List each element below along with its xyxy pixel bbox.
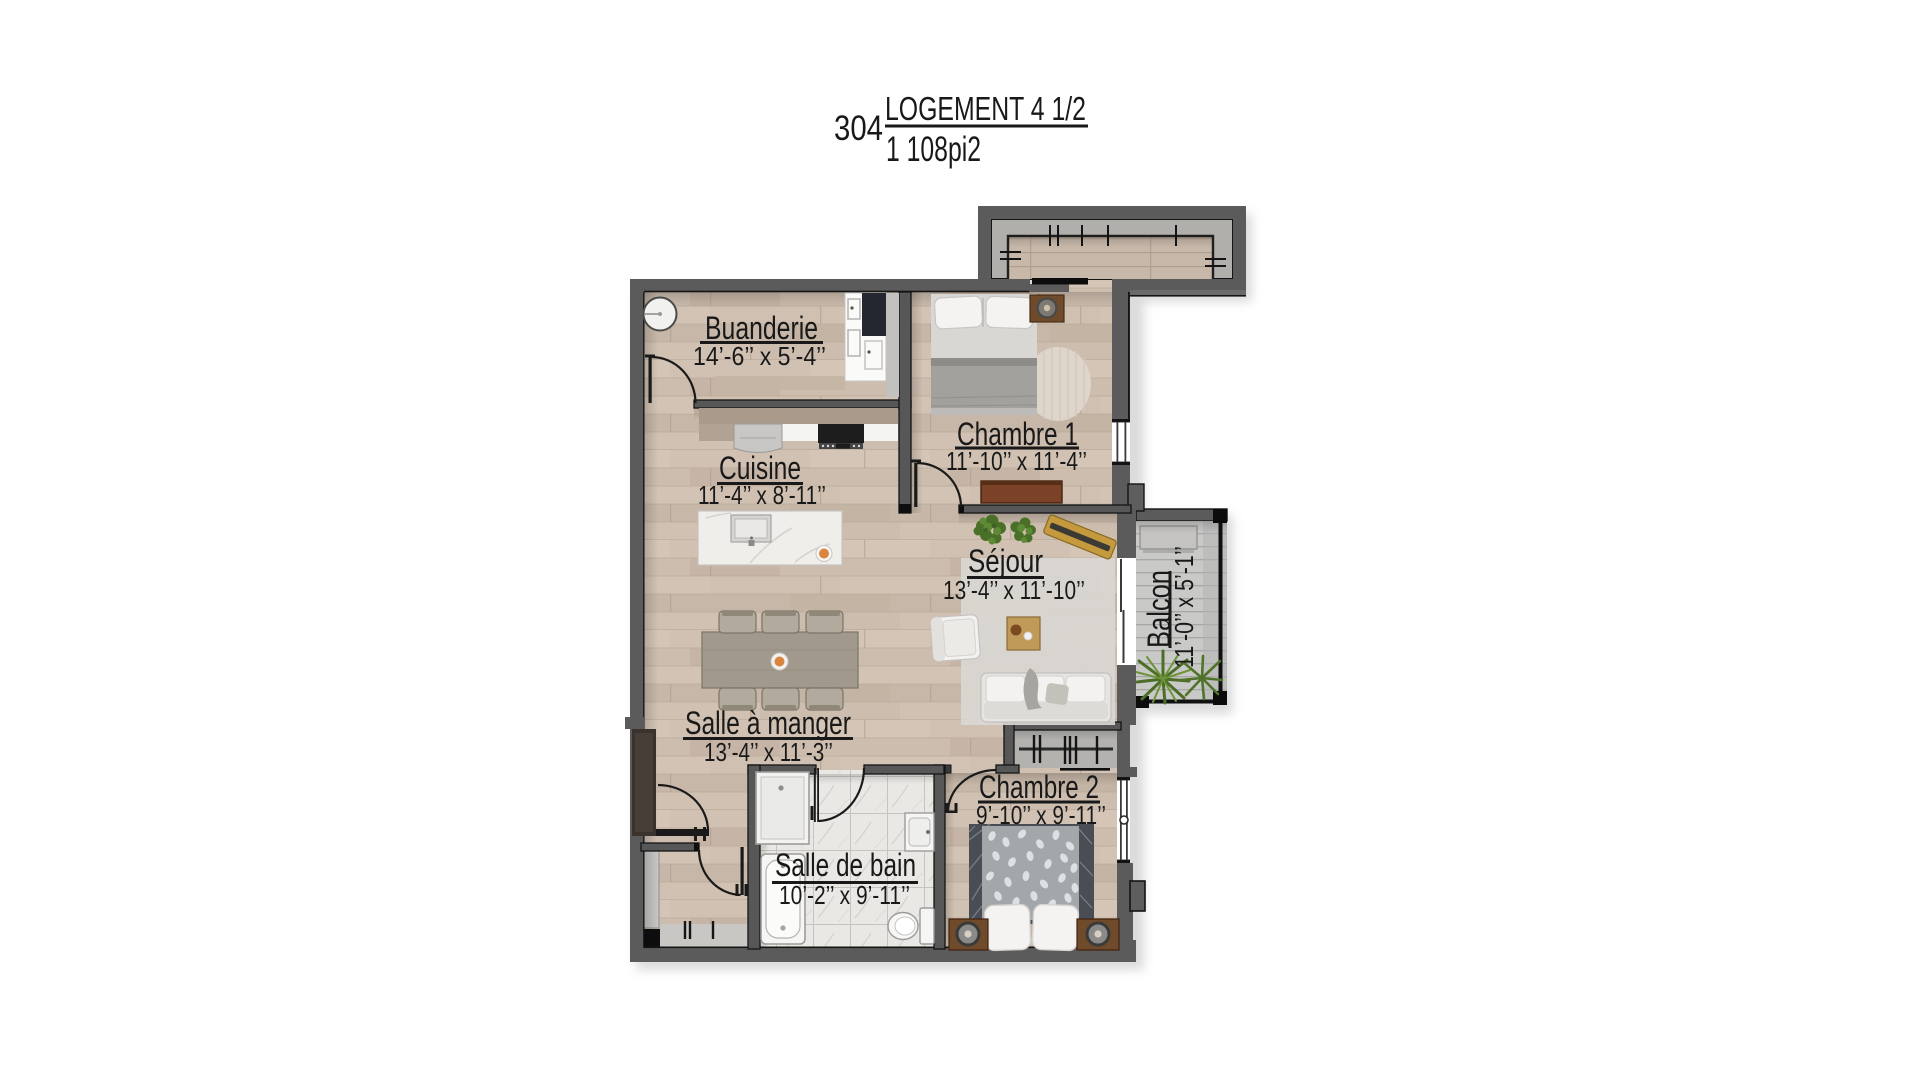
svg-text:Séjour: Séjour xyxy=(968,543,1043,579)
svg-text:Salle à manger: Salle à manger xyxy=(685,705,851,741)
svg-text:1 108pi2: 1 108pi2 xyxy=(886,130,981,169)
svg-text:13’-4’’ x 11’-10’’: 13’-4’’ x 11’-10’’ xyxy=(943,575,1085,605)
svg-text:10’-2’’ x 9’-11’’: 10’-2’’ x 9’-11’’ xyxy=(779,880,910,910)
svg-text:Salle de bain: Salle de bain xyxy=(775,847,916,883)
svg-text:304: 304 xyxy=(834,109,883,148)
svg-text:LOGEMENT 4 1/2: LOGEMENT 4 1/2 xyxy=(885,90,1086,127)
svg-text:9’-10’’ x 9’-11’’: 9’-10’’ x 9’-11’’ xyxy=(976,800,1106,830)
svg-text:13’-4’’ x 11’-3’’: 13’-4’’ x 11’-3’’ xyxy=(704,737,833,767)
svg-text:11’-4’’ x 8’-11’’: 11’-4’’ x 8’-11’’ xyxy=(698,480,826,510)
svg-text:14’-6’’ x 5’-4’’: 14’-6’’ x 5’-4’’ xyxy=(693,341,826,371)
svg-text:11’-0’’ x 5’-1’’: 11’-0’’ x 5’-1’’ xyxy=(1169,546,1199,668)
svg-text:11’-10’’ x 11’-4’’: 11’-10’’ x 11’-4’’ xyxy=(946,446,1087,476)
